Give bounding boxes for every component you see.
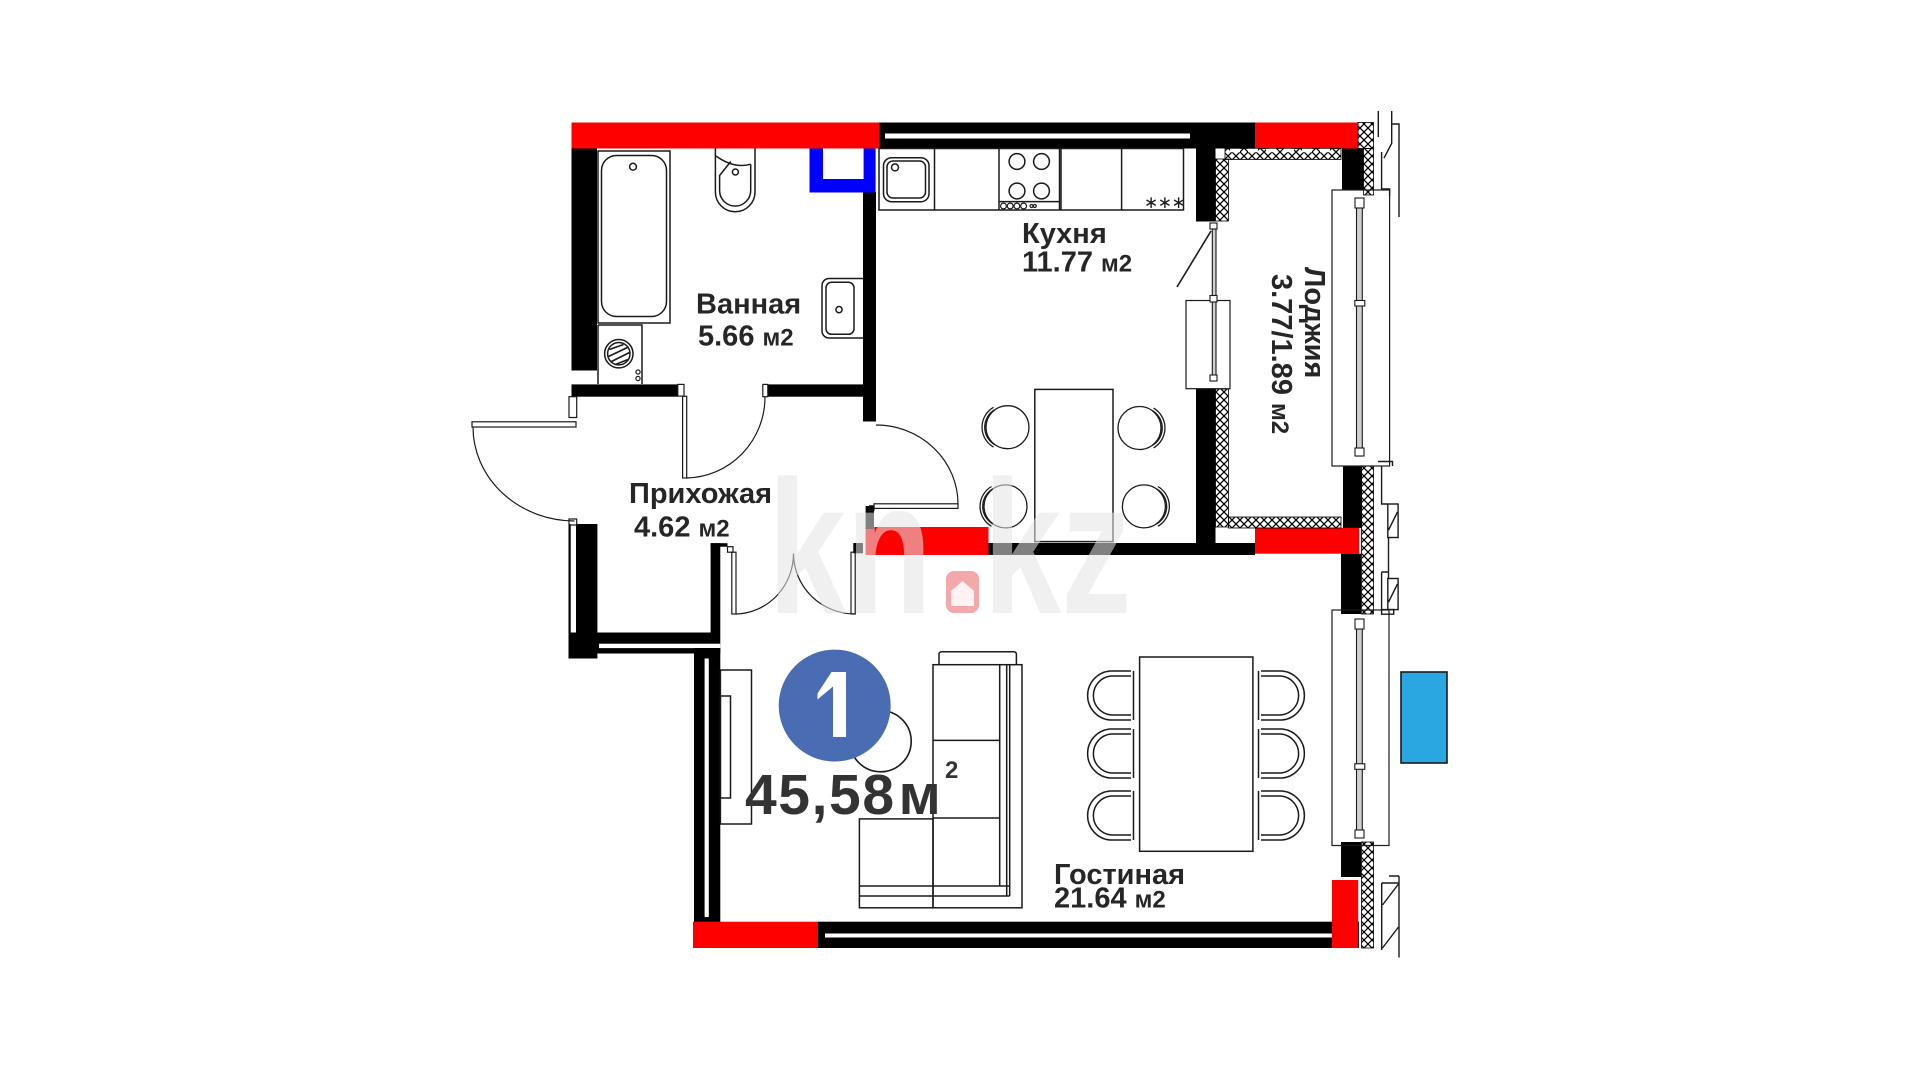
svg-text:21.64 м2: 21.64 м2: [1054, 883, 1166, 915]
svg-text:45,58м: 45,58м: [745, 763, 942, 827]
svg-text:11.77 м2: 11.77 м2: [1022, 247, 1132, 279]
svg-text:2: 2: [945, 757, 958, 784]
svg-text:∗∗∗: ∗∗∗: [1144, 193, 1185, 212]
svg-text:Кухня: Кухня: [1022, 218, 1107, 250]
svg-text:5.66 м2: 5.66 м2: [698, 321, 794, 353]
svg-text:kn: kn: [768, 442, 932, 653]
svg-text:3.77/1.89 м2: 3.77/1.89 м2: [1265, 274, 1297, 434]
svg-text:Прихожая: Прихожая: [629, 478, 772, 510]
svg-text:Лоджия: Лоджия: [1298, 267, 1330, 378]
svg-text:Ванная: Ванная: [696, 289, 801, 321]
svg-text:kz: kz: [983, 442, 1131, 653]
svg-text:4.62 м2: 4.62 м2: [634, 512, 730, 544]
